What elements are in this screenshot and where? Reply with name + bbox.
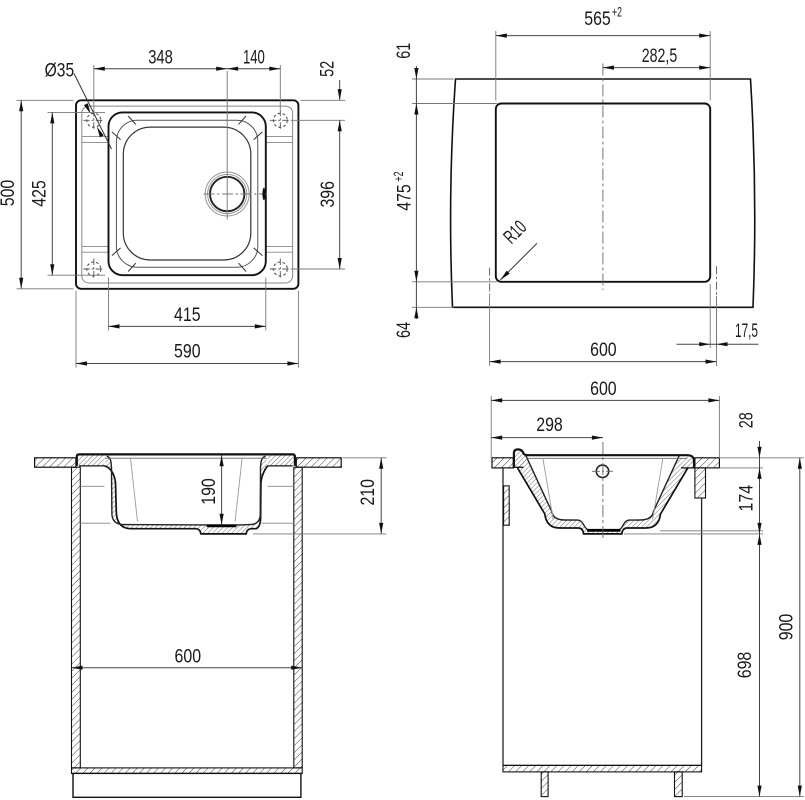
svg-text:600: 600 (590, 339, 617, 361)
svg-text:+2: +2 (391, 172, 406, 182)
svg-text:348: 348 (148, 46, 173, 68)
svg-text:17,5: 17,5 (735, 320, 758, 342)
svg-text:475: 475 (394, 184, 416, 211)
svg-text:210: 210 (357, 479, 379, 506)
svg-text:174: 174 (736, 485, 758, 512)
svg-text:298: 298 (536, 414, 563, 436)
svg-text:600: 600 (175, 646, 202, 668)
svg-text:900: 900 (775, 614, 797, 641)
svg-text:415: 415 (174, 304, 201, 326)
svg-text:Ø35: Ø35 (45, 59, 75, 81)
svg-text:425: 425 (28, 180, 50, 207)
svg-text:590: 590 (174, 340, 201, 362)
svg-text:698: 698 (734, 652, 756, 679)
svg-text:600: 600 (590, 378, 617, 400)
svg-text:28: 28 (736, 412, 758, 428)
svg-text:565: 565 (584, 8, 611, 30)
svg-text:140: 140 (243, 46, 265, 68)
svg-text:282,5: 282,5 (642, 45, 678, 67)
svg-text:396: 396 (317, 181, 339, 208)
svg-text:500: 500 (0, 180, 19, 207)
svg-text:+2: +2 (612, 5, 622, 20)
svg-text:61: 61 (393, 43, 415, 59)
svg-text:64: 64 (393, 322, 415, 338)
svg-text:190: 190 (198, 478, 220, 505)
svg-text:52: 52 (316, 61, 338, 77)
